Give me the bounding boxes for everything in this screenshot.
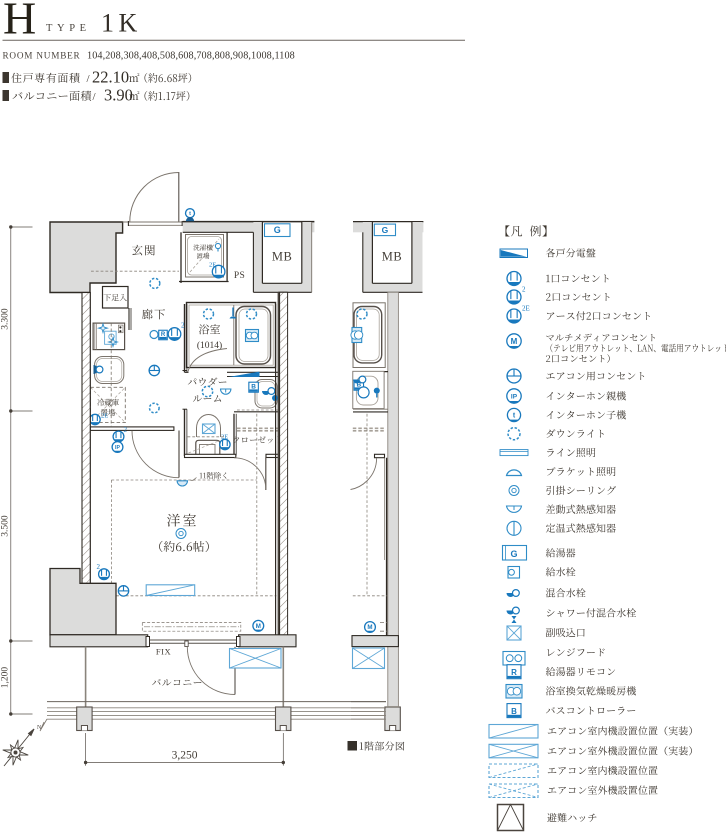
svg-text:2E: 2E	[101, 413, 108, 420]
svg-text:IP: IP	[115, 445, 120, 451]
svg-text:1K: 1K	[101, 9, 142, 38]
svg-text:2: 2	[181, 322, 185, 330]
svg-text:2: 2	[522, 286, 526, 294]
svg-text:3.500: 3.500	[1, 515, 11, 537]
svg-text:MB: MB	[272, 250, 292, 264]
svg-text:H: H	[3, 0, 36, 44]
svg-text:G: G	[382, 225, 389, 235]
svg-text:22.10: 22.10	[92, 68, 129, 87]
svg-text:B: B	[511, 707, 517, 716]
svg-text:PS: PS	[234, 271, 245, 281]
svg-text:R: R	[511, 668, 517, 677]
svg-text:M: M	[256, 623, 261, 630]
svg-text:3.300: 3.300	[1, 308, 11, 330]
svg-text:104,208,308,408,508,608,708,80: 104,208,308,408,508,608,708,808,908,1008…	[87, 51, 295, 62]
svg-text:3,250: 3,250	[172, 750, 198, 762]
svg-text:2: 2	[124, 426, 128, 434]
svg-text:1,200: 1,200	[1, 667, 11, 689]
svg-text:G: G	[510, 549, 517, 559]
svg-text:TYPE: TYPE	[46, 23, 91, 34]
svg-text:2E: 2E	[522, 305, 530, 313]
svg-text:IP: IP	[511, 393, 518, 400]
svg-text:FIX: FIX	[156, 647, 171, 657]
svg-text:ROOM NUMBER: ROOM NUMBER	[3, 51, 81, 61]
svg-text:3.90: 3.90	[104, 86, 133, 105]
svg-text:N: N	[37, 725, 42, 731]
svg-text:B: B	[251, 384, 256, 391]
svg-text:t: t	[189, 211, 191, 217]
svg-text:M: M	[367, 624, 372, 631]
svg-text:/: /	[93, 91, 97, 103]
svg-text:G: G	[274, 225, 281, 235]
svg-text:R: R	[161, 332, 166, 338]
svg-text:M: M	[511, 337, 518, 346]
svg-text:/: /	[87, 73, 91, 85]
svg-text:2: 2	[97, 563, 101, 571]
svg-text:MB: MB	[382, 250, 402, 264]
